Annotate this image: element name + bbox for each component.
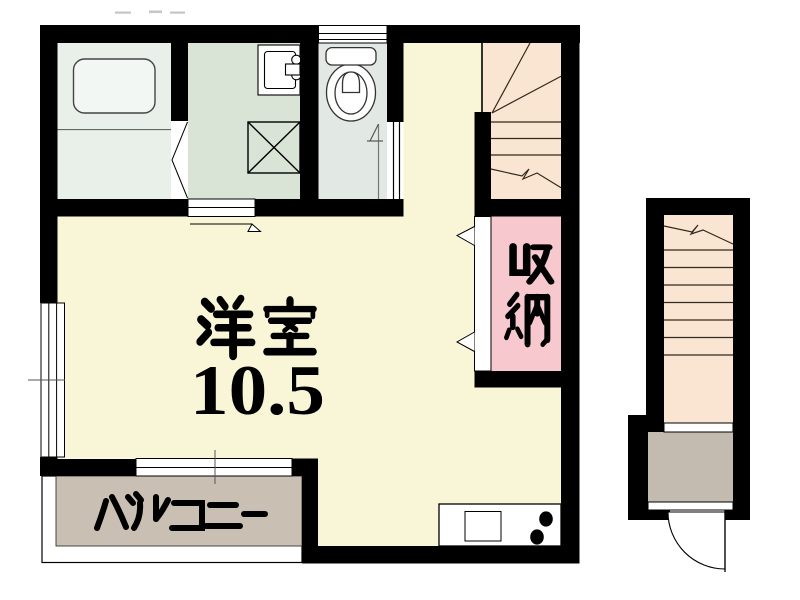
svg-text:10.5: 10.5 [190,352,325,430]
